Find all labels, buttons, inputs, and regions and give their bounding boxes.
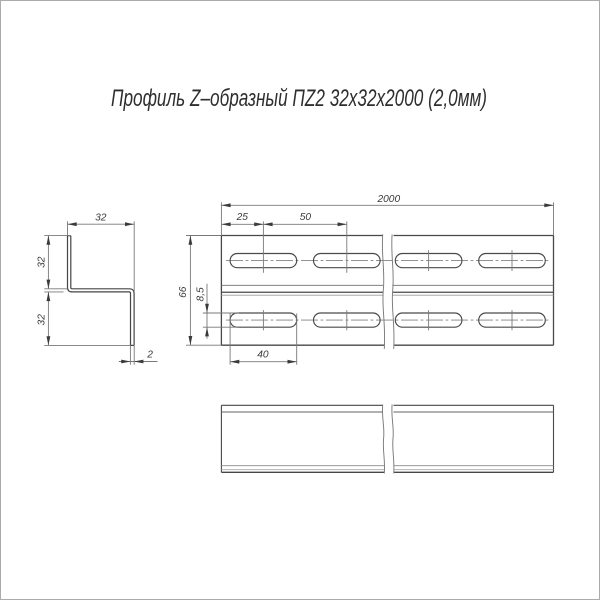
- svg-text:2: 2: [146, 350, 153, 361]
- svg-text:8,5: 8,5: [195, 287, 206, 301]
- svg-text:66: 66: [178, 286, 189, 298]
- svg-text:50: 50: [300, 212, 312, 223]
- svg-text:40: 40: [257, 350, 269, 361]
- svg-text:32: 32: [95, 213, 107, 224]
- svg-text:Профиль Z–образный ПZ2 32х32х2: Профиль Z–образный ПZ2 32х32х2000 (2,0мм…: [111, 85, 487, 112]
- svg-text:32: 32: [37, 256, 48, 268]
- svg-text:25: 25: [236, 212, 249, 223]
- svg-text:2000: 2000: [376, 194, 400, 205]
- svg-text:32: 32: [37, 314, 48, 326]
